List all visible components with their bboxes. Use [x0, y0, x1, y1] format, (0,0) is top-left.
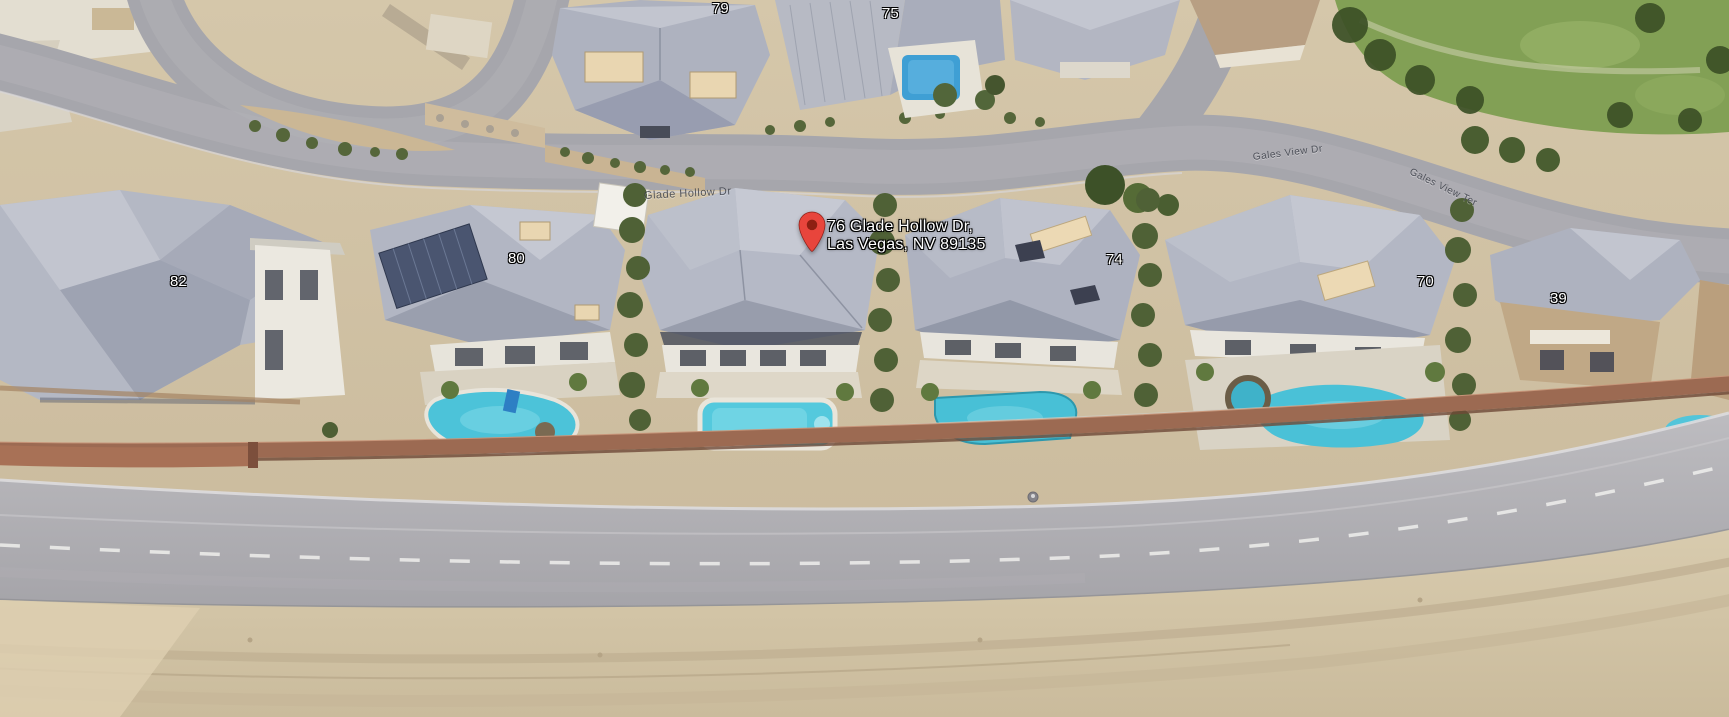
pin-dot — [807, 220, 818, 231]
pin-body — [799, 212, 825, 251]
map-pin-icon[interactable] — [797, 210, 827, 254]
map-viewport[interactable]: Glade Hollow Dr Gales View Dr Gales View… — [0, 0, 1729, 717]
aerial-imagery — [0, 0, 1729, 717]
